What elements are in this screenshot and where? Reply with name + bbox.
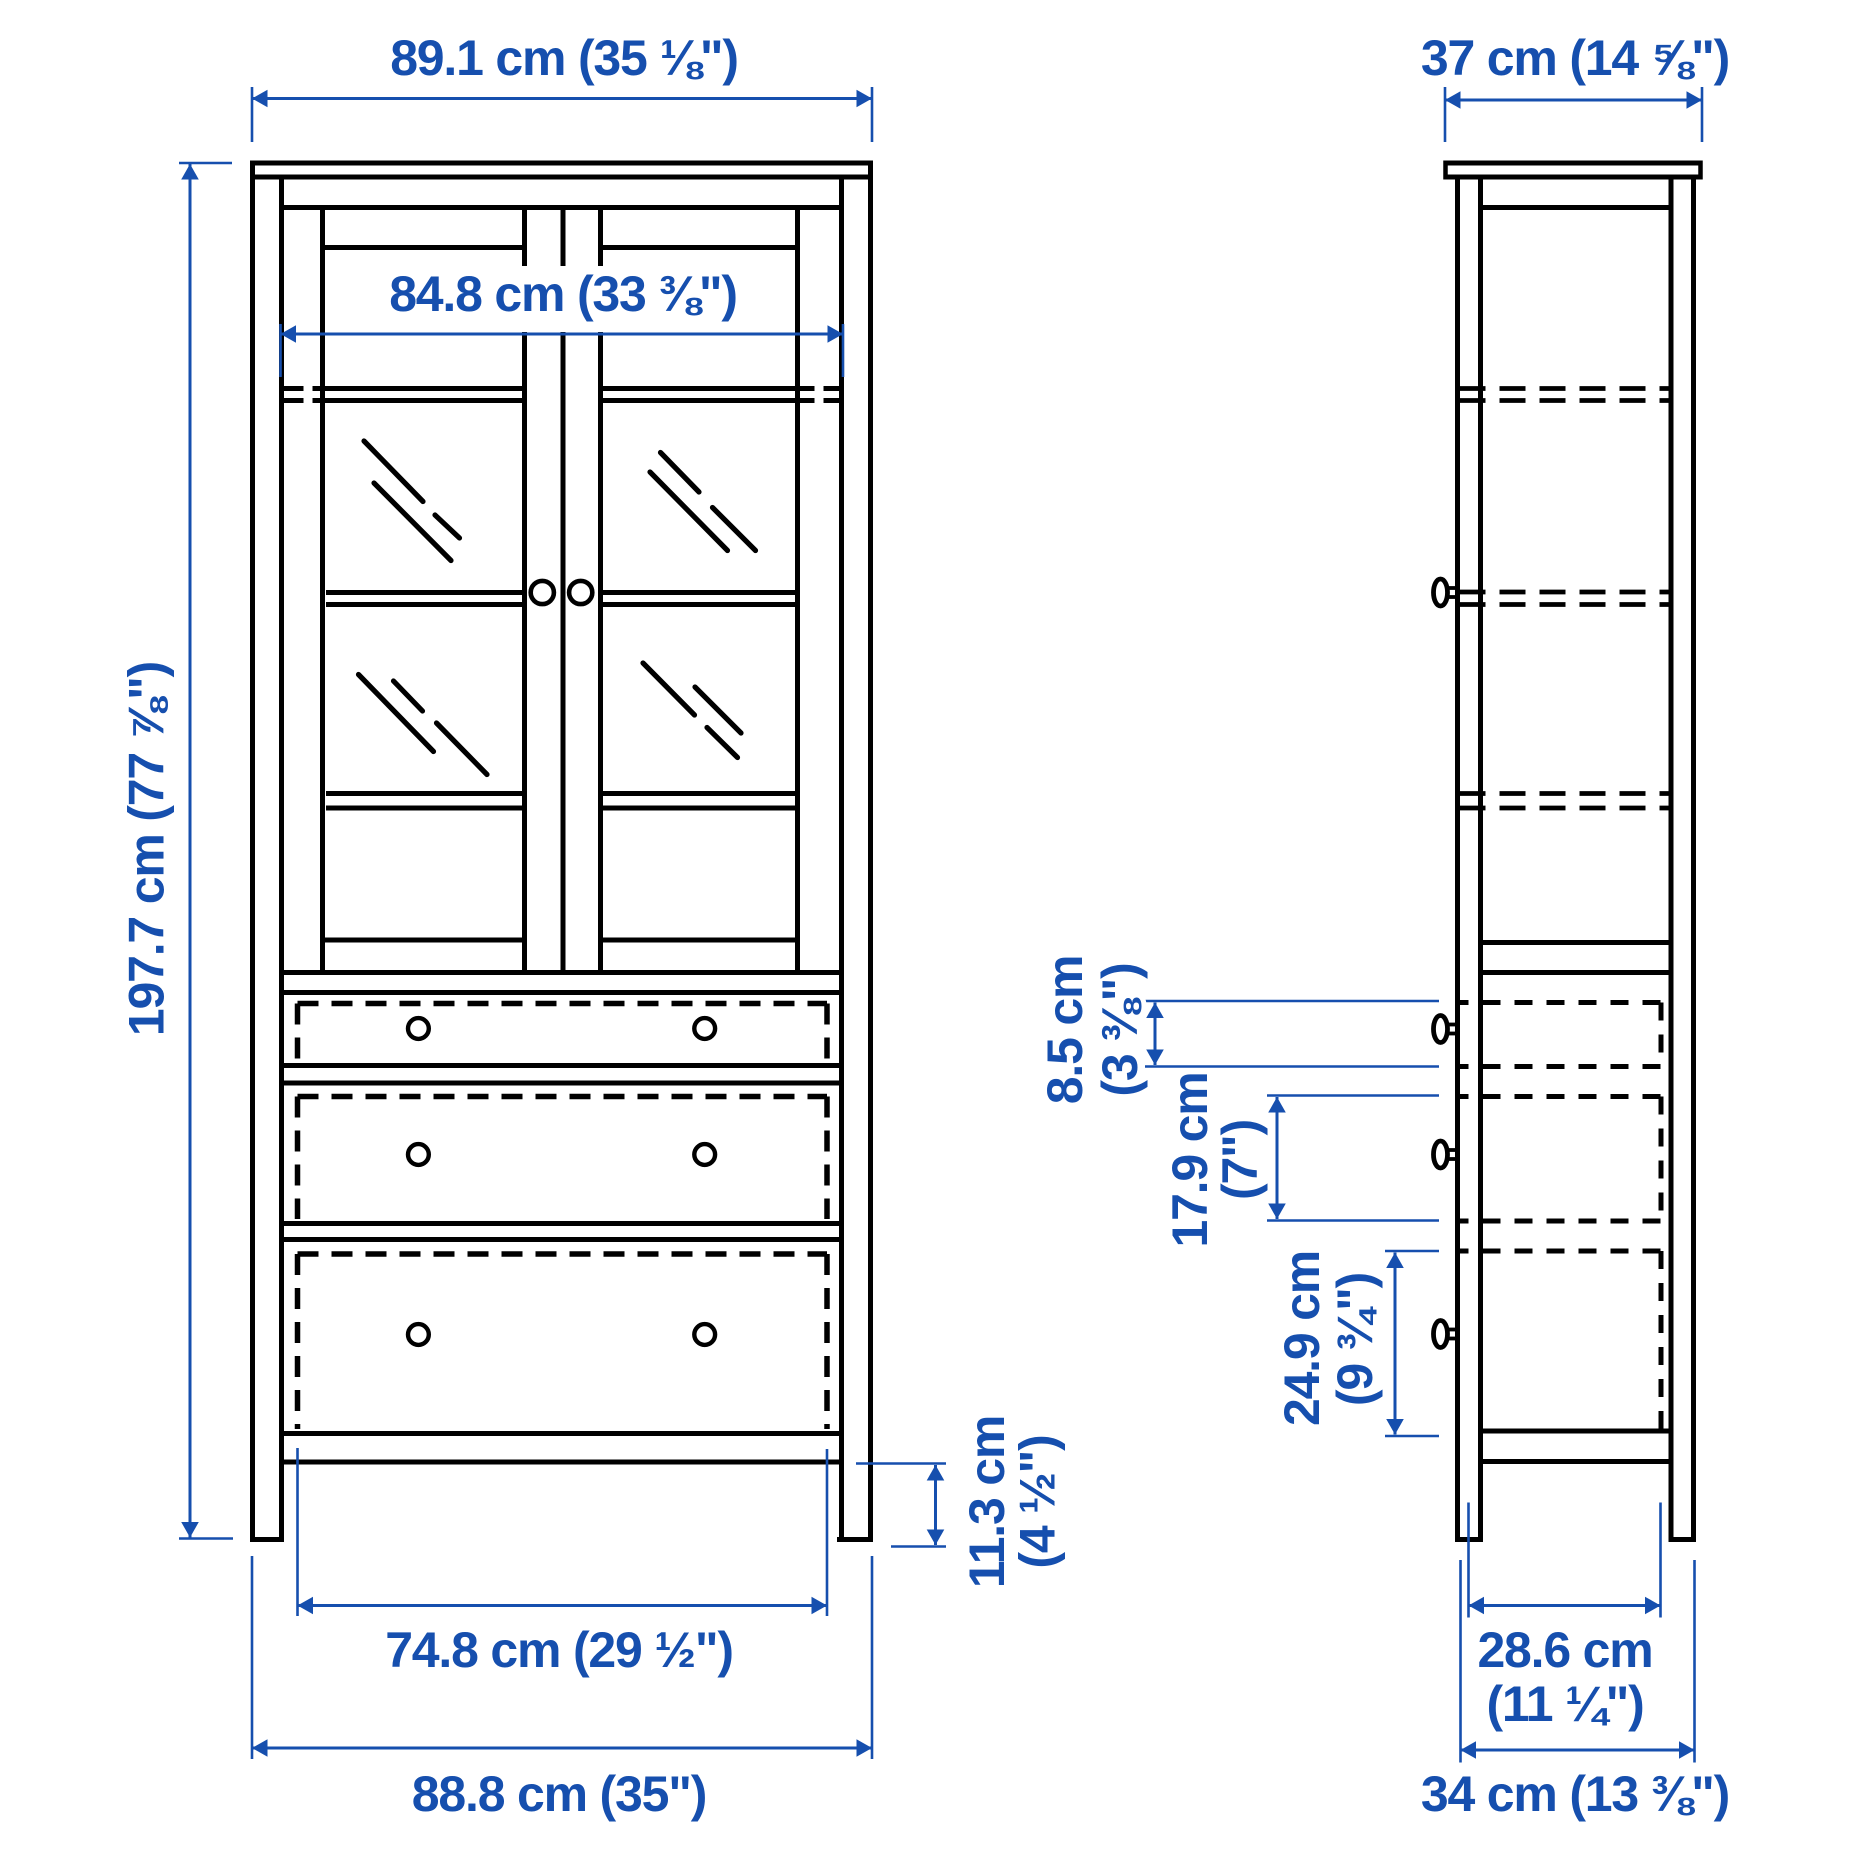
- svg-text:37 cm (14 ⅝"): 37 cm (14 ⅝"): [1421, 30, 1729, 86]
- svg-text:89.1 cm (35 ⅛"): 89.1 cm (35 ⅛"): [390, 30, 738, 86]
- svg-text:34 cm (13 ⅜"): 34 cm (13 ⅜"): [1421, 1766, 1729, 1822]
- svg-text:8.5 cm: 8.5 cm: [1037, 956, 1093, 1104]
- svg-text:(3 ⅜"): (3 ⅜"): [1092, 963, 1148, 1096]
- svg-text:84.8 cm (33 ⅜"): 84.8 cm (33 ⅜"): [389, 266, 737, 322]
- svg-text:(7"): (7"): [1212, 1120, 1268, 1200]
- svg-text:11.3 cm: 11.3 cm: [959, 1416, 1015, 1588]
- svg-text:(11 ¼"): (11 ¼"): [1486, 1676, 1643, 1732]
- svg-text:74.8 cm (29 ½"): 74.8 cm (29 ½"): [385, 1622, 733, 1678]
- svg-text:(4 ½"): (4 ½"): [1010, 1435, 1066, 1568]
- svg-text:197.7 cm (77 ⅞"): 197.7 cm (77 ⅞"): [119, 662, 175, 1036]
- svg-text:24.9 cm: 24.9 cm: [1274, 1251, 1330, 1426]
- svg-text:88.8 cm (35"): 88.8 cm (35"): [412, 1766, 706, 1822]
- svg-text:17.9 cm: 17.9 cm: [1162, 1072, 1218, 1247]
- svg-text:28.6 cm: 28.6 cm: [1477, 1622, 1652, 1678]
- svg-text:(9 ¾"): (9 ¾"): [1327, 1273, 1383, 1406]
